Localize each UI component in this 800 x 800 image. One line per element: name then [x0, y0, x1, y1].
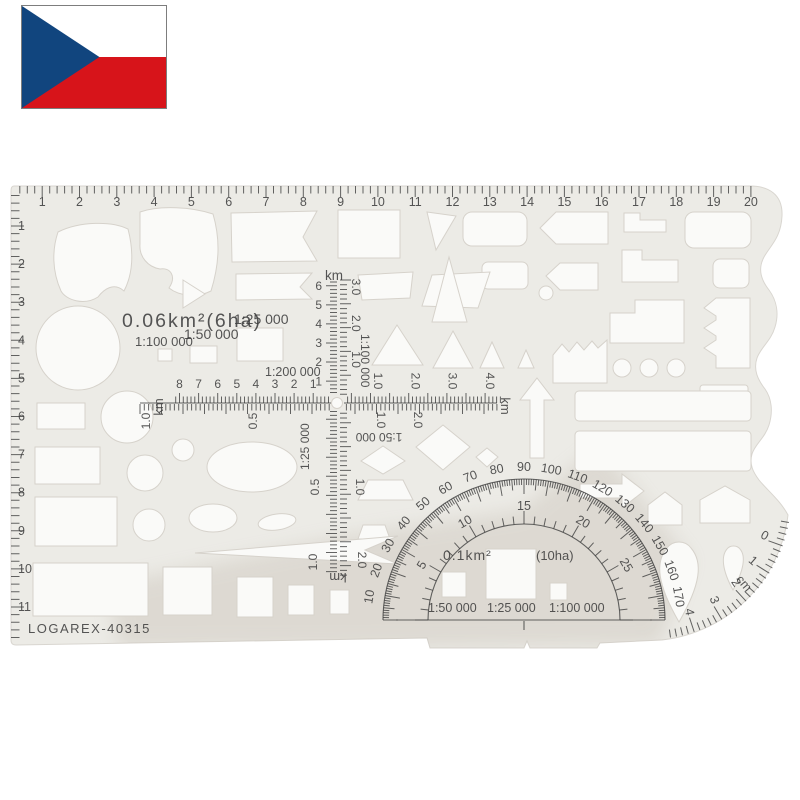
- circle-cutout: [172, 439, 194, 461]
- left-ruler-number: 6: [18, 410, 25, 424]
- top-ruler-number: 3: [113, 195, 120, 209]
- quad-cutout: [358, 272, 413, 300]
- circle-cutout: [539, 286, 553, 300]
- protractor-area-label: 0.1km²: [443, 547, 492, 563]
- vscale-number: 3.0: [349, 279, 363, 296]
- top-ruler-number: 13: [483, 195, 497, 209]
- rect-cutout: [33, 563, 148, 616]
- top-ruler-number: 11: [409, 195, 422, 209]
- circle-cutout: [36, 306, 120, 390]
- vscale-number: 5: [315, 298, 322, 312]
- rect-cutout: [158, 349, 172, 361]
- left-ruler-number: 3: [18, 295, 25, 309]
- hscale-number: 1.0: [374, 412, 388, 429]
- top-ruler-number: 8: [300, 195, 307, 209]
- top-ruler-number: 1: [39, 195, 46, 209]
- base-scale-50000: 1:50 000: [428, 601, 477, 615]
- circle-cutout: [133, 509, 165, 541]
- circle-cutout: [640, 359, 658, 377]
- vscale-number: 4: [315, 317, 322, 331]
- top-ruler-number: 7: [263, 195, 270, 209]
- vscale-100000-label: 1:100 000: [358, 334, 372, 388]
- base-scale-100000: 1:100 000: [549, 601, 605, 615]
- ellipse-cutout: [207, 442, 297, 492]
- square-cutout: [330, 590, 349, 614]
- vscale-25000-label: 1:25 000: [298, 423, 312, 470]
- left-ruler-number: 2: [18, 257, 25, 271]
- long-rect-cutout: [575, 431, 751, 471]
- top-ruler-number: 10: [371, 195, 385, 209]
- vscale-number: 2.0: [355, 552, 369, 569]
- square-cutout: [550, 583, 567, 600]
- rect-cutout: [35, 447, 100, 484]
- top-ruler-number: 9: [337, 195, 344, 209]
- hscale-number: 5: [233, 377, 240, 391]
- top-ruler-number: 20: [744, 195, 758, 209]
- vscale-number: 6: [315, 279, 322, 293]
- degree-label: 80: [489, 461, 505, 477]
- brand-label: LOGAREX-40315: [28, 621, 151, 636]
- left-ruler-number: 10: [18, 562, 32, 576]
- hscale-km-left-label: km: [151, 398, 166, 415]
- left-ruler-number: 1: [18, 219, 25, 233]
- crosshair-hole: [332, 398, 343, 409]
- top-ruler-number: 2: [76, 195, 83, 209]
- hscale-number: 3: [272, 377, 279, 391]
- rect-cutout: [338, 210, 400, 258]
- degree-label: 90: [517, 460, 531, 474]
- vscale-number: 0.5: [308, 478, 322, 495]
- stencil-template: 1234567891011121314151617181920123456789…: [0, 0, 800, 680]
- vscale-number: 1.0: [306, 553, 320, 570]
- hscale-number: 2.0: [411, 412, 425, 429]
- square-cutout: [442, 572, 466, 597]
- square-cutout: [486, 549, 536, 599]
- top-ruler-number: 5: [188, 195, 195, 209]
- top-ruler-number: 18: [669, 195, 683, 209]
- square-cutout: [288, 585, 314, 615]
- square-cutout: [163, 567, 212, 615]
- top-ruler-number: 14: [520, 195, 534, 209]
- hscale-number: 6: [214, 377, 221, 391]
- circle-cutout: [667, 359, 685, 377]
- hscale-number: 4: [253, 377, 260, 391]
- vscale-km-bottom-label: km: [329, 570, 346, 585]
- ellipse-cutout: [189, 504, 237, 532]
- top-ruler-number: 6: [225, 195, 232, 209]
- protractor-ha-label: (10ha): [536, 548, 574, 563]
- rounded-rect-cutout: [463, 212, 527, 246]
- top-ruler-number: 15: [557, 195, 571, 209]
- product-photo: 1234567891011121314151617181920123456789…: [0, 0, 800, 800]
- rect-cutout: [190, 346, 217, 363]
- inner-scale-label: 15: [517, 499, 531, 513]
- vscale-number: 3: [315, 336, 322, 350]
- hscale-number: 2: [291, 377, 298, 391]
- top-ruler-number: 12: [446, 195, 460, 209]
- hscale-number: 3.0: [446, 373, 460, 390]
- hscale-number: 4.0: [483, 373, 497, 390]
- top-ruler-number: 4: [151, 195, 158, 209]
- square-cutout: [237, 577, 273, 617]
- hscale-number: 2.0: [408, 373, 422, 390]
- hscale-number: 1.0: [371, 373, 385, 390]
- rounded-rect-cutout: [685, 212, 751, 248]
- hscale-number: 7: [195, 377, 202, 391]
- long-rect-cutout: [575, 391, 751, 421]
- hscale-km-right-label: km: [498, 397, 513, 414]
- hscale-number: 8: [176, 377, 183, 391]
- left-ruler-number: 7: [18, 448, 25, 462]
- rect-cutout: [37, 403, 85, 429]
- vscale-number: 2.0: [349, 315, 363, 332]
- hscale-number: 0.5: [246, 412, 260, 429]
- left-ruler-number: 9: [18, 524, 25, 538]
- flag-cutout: [236, 273, 312, 300]
- top-ruler-number: 16: [595, 195, 609, 209]
- hscale-50000-label: 1:50 000: [355, 430, 402, 444]
- rounded-rect-cutout: [713, 259, 749, 288]
- scale-25000-label: 1:25 000: [234, 311, 289, 327]
- scale-200000-label: 1:200 000: [265, 365, 321, 379]
- base-scale-25000: 1:25 000: [487, 601, 536, 615]
- top-ruler-number: 17: [632, 195, 646, 209]
- scale-50000-label: 1:50 000: [184, 326, 239, 342]
- circle-cutout: [613, 359, 631, 377]
- rect-cutout: [237, 328, 283, 361]
- left-ruler-number: 8: [18, 486, 25, 500]
- degree-label: 10: [361, 589, 377, 605]
- top-ruler-number: 19: [707, 195, 721, 209]
- left-ruler-number: 4: [18, 333, 25, 347]
- rect-cutout: [35, 497, 117, 546]
- left-ruler-number: 5: [18, 371, 25, 385]
- vscale-number: 1.0: [353, 479, 367, 496]
- hscale-number: 1: [310, 377, 317, 391]
- left-ruler-number: 11: [18, 600, 31, 614]
- vscale-km-top-label: km: [325, 268, 343, 283]
- circle-cutout: [127, 455, 163, 491]
